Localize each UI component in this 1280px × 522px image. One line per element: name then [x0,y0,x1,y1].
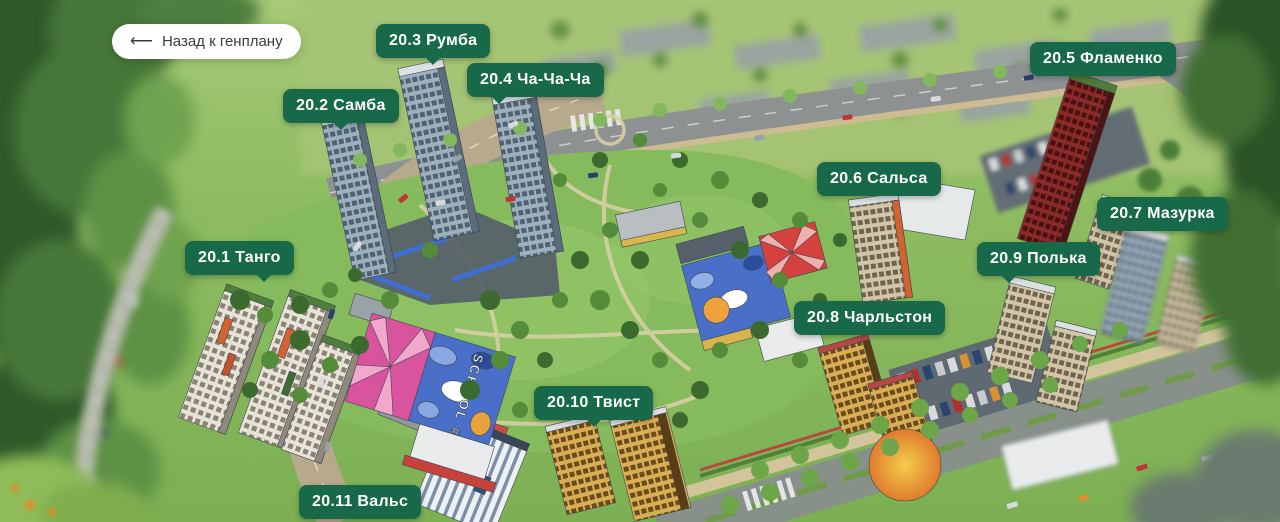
building-label-text: 20.11 Вальс [312,493,408,510]
building-label-text: 20.5 Фламенко [1043,50,1163,67]
building-label-text: 20.9 Полька [990,250,1087,267]
building-label-text: 20.10 Твист [547,394,640,411]
back-arrow-icon: ⟵ [130,34,153,50]
building-label-text: 20.7 Мазурка [1110,205,1215,222]
building-label-text: 20.2 Самба [296,97,386,114]
building-label-text: 20.8 Чарльстон [807,309,932,326]
building-label-20-11[interactable]: 20.11 Вальс [299,485,421,519]
building-label-20-7[interactable]: 20.7 Мазурка [1097,197,1228,231]
back-button-label: Назад к генплану [162,33,283,50]
building-label-20-6[interactable]: 20.6 Сальса [817,162,941,196]
building-label-20-9[interactable]: 20.9 Полька [977,242,1100,276]
label-pointer [1001,275,1017,283]
building-label-20-3[interactable]: 20.3 Румба [376,24,490,58]
label-pointer [333,122,349,130]
building-label-text: 20.6 Сальса [830,170,928,187]
building-label-20-4[interactable]: 20.4 Ча-Ча-Ча [467,63,604,97]
building-label-text: 20.4 Ча-Ча-Ча [480,71,591,88]
building-label-20-5[interactable]: 20.5 Фламенко [1030,42,1176,76]
label-pointer [586,419,602,427]
building-label-20-1[interactable]: 20.1 Танго [185,241,294,275]
building-label-20-2[interactable]: 20.2 Самба [283,89,399,123]
building-label-text: 20.1 Танго [198,249,281,266]
back-to-masterplan-button[interactable]: ⟵ Назад к генплану [112,24,301,59]
masterplan-viewer: SCHOOL #1 [0,0,1280,522]
building-label-20-8[interactable]: 20.8 Чарльстон [794,301,945,335]
label-pointer [491,96,507,104]
building-label-text: 20.3 Румба [389,32,477,49]
label-pointer [256,274,272,282]
label-pointer [425,57,441,65]
building-label-20-10[interactable]: 20.10 Твист [534,386,653,420]
